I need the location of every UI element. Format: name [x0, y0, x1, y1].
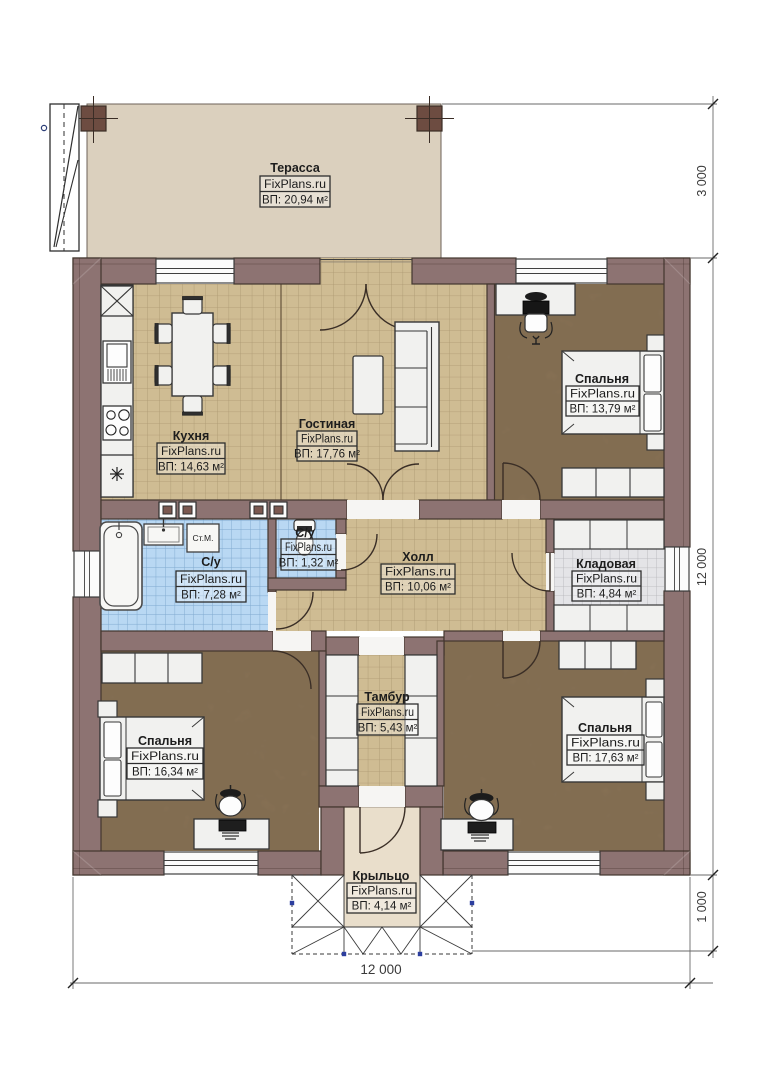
- svg-text:ВП: 5,43 м²: ВП: 5,43 м²: [358, 723, 418, 735]
- svg-text:FixPlans.ru: FixPlans.ru: [285, 542, 332, 554]
- svg-text:12 000: 12 000: [360, 962, 401, 977]
- svg-text:FixPlans.ru: FixPlans.ru: [301, 434, 353, 446]
- svg-text:Спальня: Спальня: [575, 372, 629, 386]
- svg-text:FixPlans.ru: FixPlans.ru: [131, 751, 199, 763]
- svg-text:ВП: 13,79 м²: ВП: 13,79 м²: [569, 404, 635, 416]
- svg-text:ВП: 17,76 м²: ВП: 17,76 м²: [294, 449, 360, 461]
- svg-text:FixPlans.ru: FixPlans.ru: [264, 179, 326, 191]
- svg-text:ВП: 14,63 м²: ВП: 14,63 м²: [158, 462, 224, 474]
- svg-text:FixPlans.ru: FixPlans.ru: [576, 574, 637, 586]
- svg-text:Терасса: Терасса: [270, 161, 321, 175]
- svg-text:Кухня: Кухня: [173, 429, 210, 443]
- svg-text:FixPlans.ru: FixPlans.ru: [570, 389, 635, 401]
- svg-text:ВП: 10,06 м²: ВП: 10,06 м²: [385, 582, 451, 594]
- svg-text:Кладовая: Кладовая: [576, 557, 636, 571]
- svg-text:С/у: С/у: [201, 555, 221, 569]
- svg-text:ВП: 17,63 м²: ВП: 17,63 м²: [572, 753, 638, 765]
- svg-text:ВП: 1,32 м²: ВП: 1,32 м²: [279, 558, 339, 570]
- svg-text:С/у: С/у: [295, 526, 315, 540]
- svg-text:Тамбур: Тамбур: [364, 690, 410, 704]
- svg-text:Спальня: Спальня: [578, 721, 632, 735]
- svg-text:ВП: 16,34 м²: ВП: 16,34 м²: [132, 767, 198, 779]
- svg-text:FixPlans.ru: FixPlans.ru: [180, 574, 242, 586]
- svg-text:FixPlans.ru: FixPlans.ru: [571, 738, 640, 750]
- svg-text:Спальня: Спальня: [138, 734, 192, 748]
- svg-text:ВП: 4,84 м²: ВП: 4,84 м²: [577, 589, 637, 601]
- svg-text:1 000: 1 000: [695, 891, 709, 922]
- svg-text:ВП: 4,14 м²: ВП: 4,14 м²: [352, 901, 412, 913]
- svg-text:FixPlans.ru: FixPlans.ru: [351, 886, 412, 898]
- svg-text:ВП: 7,28 м²: ВП: 7,28 м²: [181, 590, 241, 602]
- svg-text:FixPlans.ru: FixPlans.ru: [385, 567, 451, 579]
- svg-text:FixPlans.ru: FixPlans.ru: [361, 707, 414, 719]
- svg-text:ВП: 20,94 м²: ВП: 20,94 м²: [262, 195, 328, 207]
- svg-text:Холл: Холл: [402, 550, 433, 564]
- svg-text:Гостиная: Гостиная: [299, 417, 356, 431]
- svg-text:FixPlans.ru: FixPlans.ru: [161, 446, 221, 458]
- svg-text:12 000: 12 000: [695, 548, 709, 586]
- svg-text:Крыльцо: Крыльцо: [353, 869, 410, 883]
- svg-text:Ст.М.: Ст.М.: [193, 533, 214, 543]
- svg-text:3 000: 3 000: [695, 165, 709, 196]
